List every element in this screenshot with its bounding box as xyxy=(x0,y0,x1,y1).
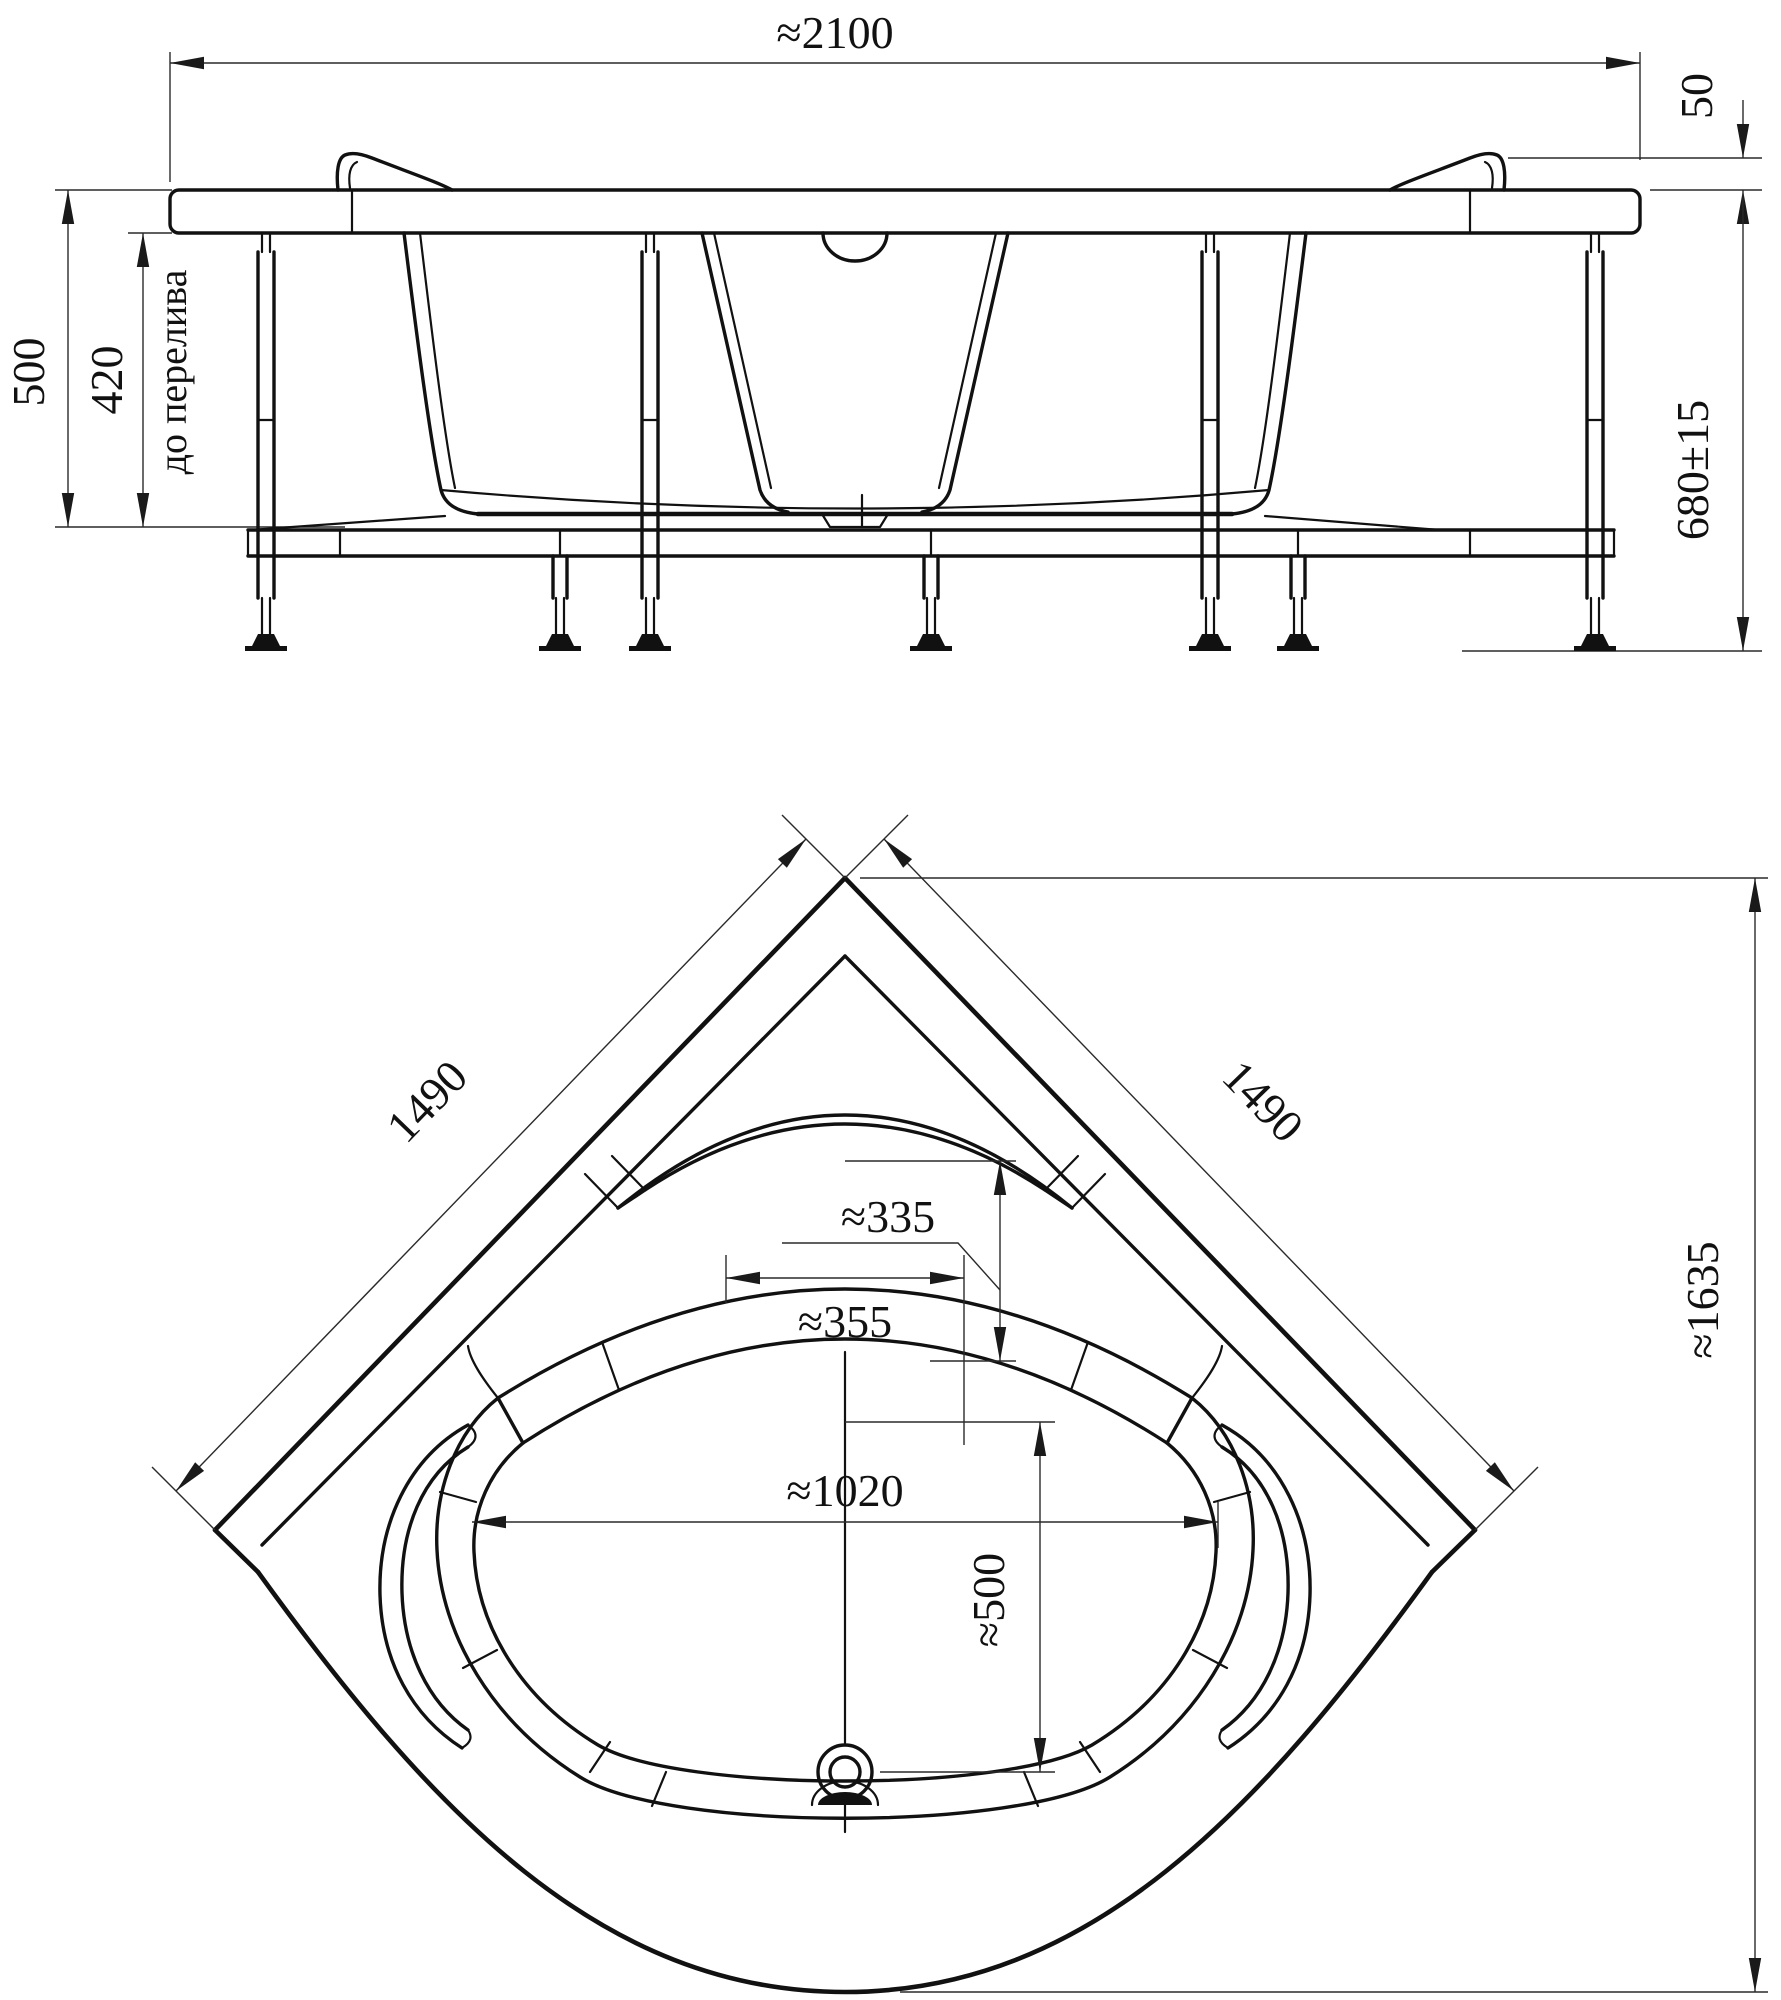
frame-legs xyxy=(245,233,1616,651)
overflow-hole xyxy=(823,233,887,261)
leg-short xyxy=(553,556,1305,598)
headrest-right xyxy=(1390,154,1505,190)
dim-overall-height: 680±15 xyxy=(1462,190,1762,651)
tub-rim xyxy=(170,190,1640,233)
plan-view: 1490 1490 ≈1635 ≈335 xyxy=(152,815,1768,1992)
adjustable-feet xyxy=(245,598,1616,651)
dim-overflow-depth: 420 до перелива xyxy=(81,233,195,527)
dim-overall-width: ≈2100 xyxy=(170,7,1640,182)
plan-bowl xyxy=(437,1352,1254,1832)
dim-side-right: 1490 xyxy=(845,815,1538,1530)
front-view: ≈2100 50 680±15 xyxy=(3,7,1762,651)
label-drain-distance: ≈500 xyxy=(963,1553,1014,1647)
label-side-right: 1490 xyxy=(1213,1050,1314,1152)
drawing-sheet: ≈2100 50 680±15 xyxy=(0,0,1781,2000)
dim-side-left: 1490 xyxy=(152,815,845,1530)
label-corner-to-front: ≈1635 xyxy=(1677,1241,1728,1358)
label-overall-width: ≈2100 xyxy=(776,7,893,58)
drain-hole xyxy=(818,1745,872,1799)
dim-headrest-height: 50 xyxy=(1508,73,1762,224)
label-side-left: 1490 xyxy=(377,1050,478,1152)
label-overflow-note: до перелива xyxy=(150,269,195,474)
label-bowl-width: ≈1020 xyxy=(786,1465,903,1516)
label-headrest-depth: ≈335 xyxy=(841,1191,935,1242)
label-overall-height: 680±15 xyxy=(1667,400,1718,540)
bathtub-technical-drawing: ≈2100 50 680±15 xyxy=(0,0,1781,2000)
tub-bowl-section xyxy=(404,233,1306,527)
plan-armrest-right xyxy=(1215,1425,1311,1748)
label-inner-depth: 500 xyxy=(3,338,54,407)
label-headrest-height: 50 xyxy=(1671,73,1722,119)
plan-armrest-left xyxy=(380,1425,476,1748)
label-overflow-depth: 420 xyxy=(81,346,132,415)
headrest-left xyxy=(337,154,452,190)
dim-corner-to-front: ≈1635 xyxy=(860,878,1768,1992)
support-frame xyxy=(248,516,1614,556)
label-headrest-width: ≈355 xyxy=(798,1296,892,1347)
